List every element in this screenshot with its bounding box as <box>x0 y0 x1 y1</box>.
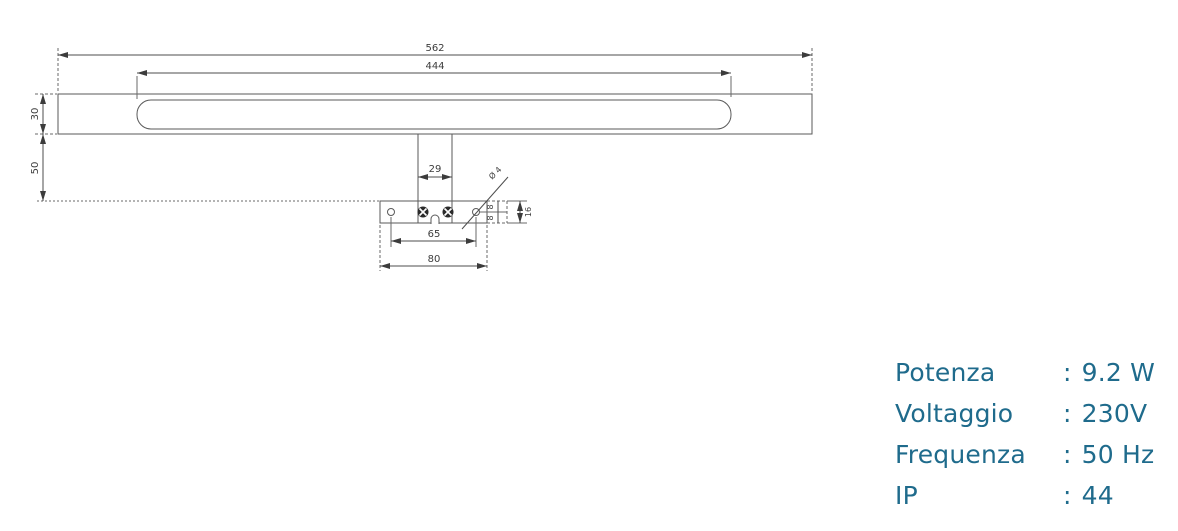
dim-hole-offset-top-label: 8 <box>486 204 495 209</box>
spec-label: Voltaggio <box>895 393 1063 434</box>
dim-arm-width: 29 <box>418 164 452 177</box>
left-mounting-hole <box>388 209 395 216</box>
lamp-body-group <box>58 94 812 134</box>
spec-row-ip: IP : 44 <box>895 475 1155 516</box>
dim-plate-width-label: 80 <box>428 254 441 265</box>
spec-label: Potenza <box>895 352 1063 393</box>
spec-label: IP <box>895 475 1063 516</box>
dim-plate-height-label: 16 <box>524 207 533 217</box>
dim-lamp-body-width-label: 444 <box>425 61 444 72</box>
dim-lamp-body-height-label: 30 <box>30 108 41 121</box>
dim-arm-drop-label: 50 <box>30 162 41 175</box>
dim-overall-width-label: 562 <box>425 43 444 54</box>
dim-hole-diameter: Ø 4 <box>462 164 508 229</box>
spec-row-voltaggio: Voltaggio : 230V <box>895 393 1155 434</box>
spec-separator: : <box>1063 475 1072 516</box>
spec-value: 50 Hz <box>1082 434 1155 475</box>
spec-sheet-page: 562 444 30 50 29 <box>0 0 1178 531</box>
dim-lamp-body-width: 444 <box>137 61 731 99</box>
dim-hole-offset-bottom-label: 8 <box>486 215 495 220</box>
spec-separator: : <box>1063 434 1072 475</box>
dim-arm-width-label: 29 <box>429 164 442 175</box>
dim-hole-spacing-label: 65 <box>428 229 441 240</box>
spec-row-frequenza: Frequenza : 50 Hz <box>895 434 1155 475</box>
dim-arm-drop: 50 <box>30 134 43 201</box>
spec-row-potenza: Potenza : 9.2 W <box>895 352 1155 393</box>
right-mounting-hole <box>473 209 480 216</box>
cable-notch <box>431 215 439 224</box>
screw-right <box>443 207 454 218</box>
spec-value: 230V <box>1082 393 1148 434</box>
dim-lamp-body-height: 30 <box>30 94 57 134</box>
spec-list: Potenza : 9.2 W Voltaggio : 230V Frequen… <box>895 352 1155 516</box>
spec-separator: : <box>1063 352 1072 393</box>
dim-hole-diameter-label: Ø 4 <box>486 164 503 181</box>
spec-separator: : <box>1063 393 1072 434</box>
screw-left <box>418 207 429 218</box>
dim-plate-height: 16 <box>507 201 533 223</box>
technical-drawing: 562 444 30 50 29 <box>0 0 840 300</box>
spec-value: 9.2 W <box>1082 352 1155 393</box>
spec-label: Frequenza <box>895 434 1063 475</box>
spec-value: 44 <box>1082 475 1114 516</box>
